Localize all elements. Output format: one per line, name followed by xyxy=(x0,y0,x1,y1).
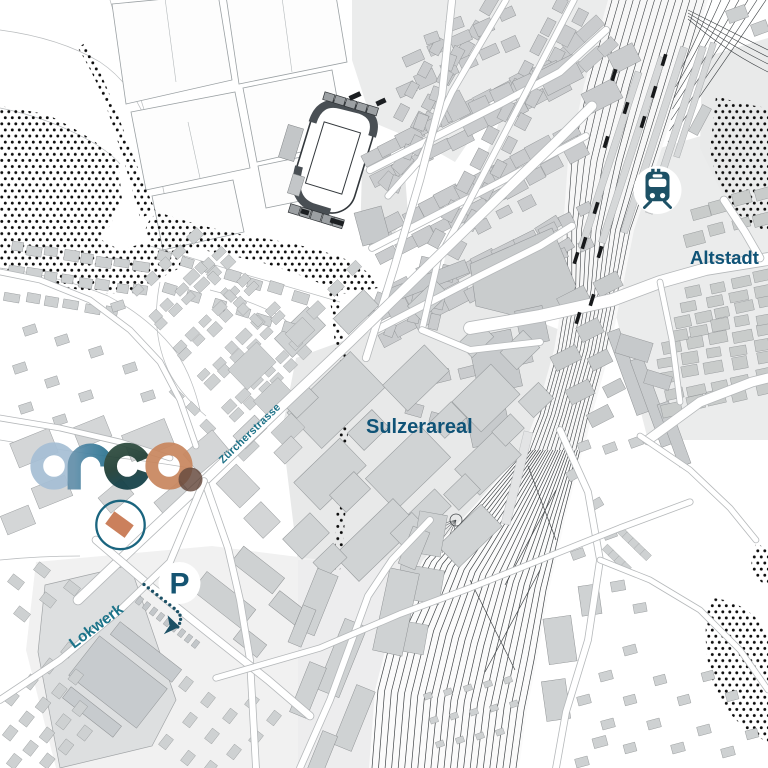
svg-text:Sulzerareal: Sulzerareal xyxy=(366,416,473,438)
svg-text:P: P xyxy=(169,568,189,601)
svg-text:Altstadt: Altstadt xyxy=(690,247,759,268)
